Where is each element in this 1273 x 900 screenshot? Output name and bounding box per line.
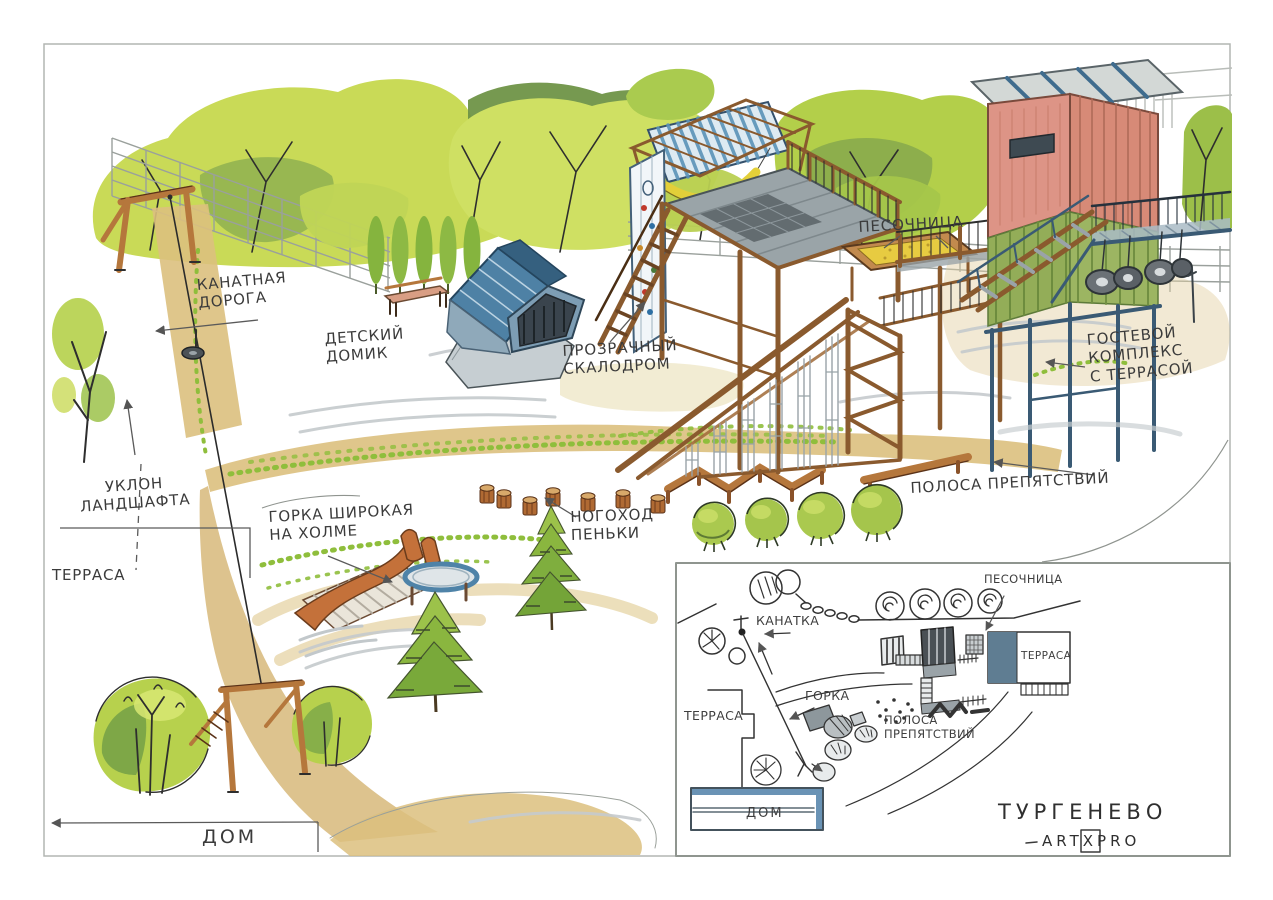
inset-label-obstacle-course: ПОЛОСА ПРЕПЯТСТВИЙ bbox=[884, 713, 975, 741]
sketch-page: КАНАТНАЯ ДОРОГА ДЕТСКИЙ ДОМИК ПРОЗРАЧНЫЙ… bbox=[0, 0, 1273, 900]
label-terrace: ТЕРРАСА bbox=[52, 566, 125, 584]
site-name: ТУРГЕНЕВО bbox=[998, 800, 1167, 826]
label-guest-complex: ГОСТЕВОЙ КОМПЛЕКС С ТЕРРАСОЙ bbox=[1086, 322, 1194, 386]
label-transparent-climbing-wall: ПРОЗРАЧНЫЙ СКАЛОДРОМ bbox=[562, 336, 679, 379]
inset-label-sandbox: ПЕСОЧНИЦА bbox=[984, 572, 1063, 586]
label-kids-house: ДЕТСКИЙ ДОМИК bbox=[324, 324, 406, 366]
label-wide-slide: ГОРКА ШИРОКАЯ НА ХОЛМЕ bbox=[268, 500, 415, 544]
inset-label-cableway: КАНАТКА bbox=[756, 613, 819, 628]
inset-label-slide: ГОРКА bbox=[805, 688, 849, 703]
site-sketch-illustration bbox=[0, 0, 1273, 900]
label-house: ДОМ bbox=[202, 826, 257, 849]
inset-label-terrace-right: ТЕРРАСА bbox=[1021, 650, 1071, 663]
studio-name: ARTXPRO bbox=[1042, 832, 1140, 850]
inset-label-house: ДОМ bbox=[746, 806, 784, 822]
label-cable-road: КАНАТНАЯ ДОРОГА bbox=[196, 268, 289, 312]
label-stump-walk: НОГОХОД ПЕНЬКИ bbox=[570, 505, 655, 544]
inset-label-terrace-left: ТЕРРАСА bbox=[684, 708, 743, 723]
